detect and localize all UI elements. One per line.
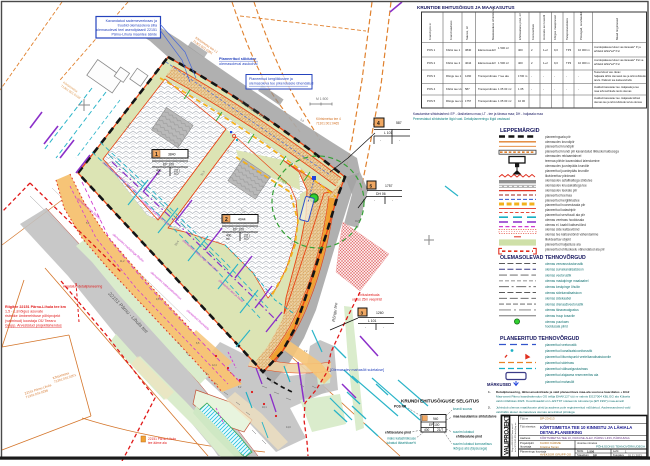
svg-text:arhitekti tähtis*ed* P.sl: arhitekti tähtis*ed* P.sl — [594, 62, 620, 66]
svg-text:Kõrtsi tee 1: Kõrtsi tee 1 — [446, 48, 461, 52]
svg-text:1: 1 — [155, 152, 158, 158]
svg-text:Joonise nimetus: Joonise nimetus — [577, 441, 598, 445]
svg-text:POS 1: POS 1 — [427, 48, 436, 52]
svg-text:1 05: 1 05 — [518, 87, 524, 91]
svg-text:suurim lubatud: suurim lubatud — [453, 430, 474, 434]
svg-text:POS 5: POS 5 — [427, 99, 436, 103]
svg-text:VALIPROJEKT: VALIPROJEKT — [504, 415, 511, 455]
svg-text:-: - — [554, 74, 555, 78]
svg-text:1757: 1757 — [465, 99, 472, 103]
svg-text:1+2: 1+2 — [543, 48, 548, 52]
svg-text:Maakasutuse sihtotstarve: Maakasutuse sihtotstarve — [491, 7, 495, 40]
svg-text:1260: 1260 — [376, 311, 384, 315]
svg-text:DH 06: DH 06 — [376, 192, 386, 196]
svg-text:Juhindub olemas maaüksuste pii: Juhindub olemas maaüksuste piirid ja aad… — [496, 405, 631, 409]
svg-text:-: - — [543, 74, 544, 78]
svg-text:Ehituskeeluala: Ehituskeeluala — [358, 293, 380, 297]
svg-text:1,5 - 1,8 lõigus asuvate: 1,5 - 1,8 lõigus asuvate — [5, 310, 43, 314]
svg-text:AVEKSOR GRUPP OÜ: AVEKSOR GRUPP OÜ — [540, 453, 571, 457]
svg-text:vald läbiv alusel olemasoleva: vald läbiv alusel olemasoleva olemas ame… — [496, 410, 575, 414]
svg-text:olemas tee kaitsevööndi vähend: olemas tee kaitsevööndi vähendamine — [545, 233, 599, 237]
svg-text:400: 400 — [424, 428, 430, 432]
svg-text:3840: 3840 — [465, 48, 472, 52]
svg-text:Transpordimaa: Transpordimaa — [478, 99, 497, 103]
svg-text:olemasoleva tee pikendusele üh: olemasoleva tee pikendusele ühendatud — [249, 82, 313, 86]
svg-text:1 05 00 m²: 1 05 00 m² — [498, 99, 511, 103]
svg-text:Tulepüsivusklass: Tulepüsivusklass — [565, 18, 569, 40]
svg-text:Riigitee 22151 Pärnu-Lihula te: Riigitee 22151 Pärnu-Lihula tee km — [5, 305, 67, 309]
svg-text:olemas puurkaev: olemas puurkaev — [545, 320, 569, 324]
svg-text:-: - — [531, 87, 532, 91]
svg-text:olemasolev krundipiir: olemasolev krundipiir — [545, 140, 575, 144]
svg-text:truubid olemasoleva silla: truubid olemasoleva silla — [118, 24, 157, 28]
svg-text:tee äärne ala: tee äärne ala — [148, 441, 167, 445]
svg-text:[Olemasolev mahasõit suletakse: [Olemasolev mahasõit suletakse] — [330, 368, 384, 372]
svg-text:Kasutamise sihtotstarbed: EP -: Kasutamise sihtotstarbed: EP - üksikelam… — [413, 112, 543, 116]
svg-text:Algatatud detailplaneering: Algatatud detailplaneering — [63, 285, 102, 289]
svg-text:Avalikult kasutatav tee. Halja: Avalikult kasutatav tee. Haljasala ja te… — [594, 85, 639, 89]
svg-text:Rõngu tee 1: Rõngu tee 1 — [446, 74, 462, 78]
svg-text:Transpordimaa: Transpordimaa — [478, 74, 497, 78]
svg-text:1 05 00 m²: 1 05 00 m² — [498, 87, 511, 91]
svg-text:olemas veetorustik: olemas veetorustik — [545, 273, 572, 277]
svg-text:KÕRTSIMETSA TEE 10, PAIKUSE AL: KÕRTSIMETSA TEE 10, PAIKUSE ALEV, PÄRNU … — [540, 435, 630, 440]
svg-text:9,0: 9,0 — [174, 172, 179, 176]
svg-text:Planeeritud kergliiklustee ja: Planeeritud kergliiklustee ja — [249, 77, 293, 81]
svg-text:olemas sidekaabel: olemas sidekaabel — [545, 297, 571, 301]
svg-text:14,0: 14,0 — [286, 426, 291, 429]
svg-text:DP-23-013: DP-23-013 — [540, 417, 555, 421]
svg-text:planeeritud katastripiir: planeeritud katastripiir — [545, 208, 576, 212]
svg-text:olemasolev kruusakattega tee: olemasolev kruusakattega tee — [545, 184, 587, 188]
svg-text:-: - — [374, 198, 375, 202]
svg-text:-: - — [543, 87, 544, 91]
svg-text:haljasala tähtis olemasol.tee: haljasala tähtis olemasol.tee ja tehnovõ… — [594, 74, 646, 78]
svg-text:Rõngu tee L1: Rõngu tee L1 — [446, 99, 463, 103]
svg-text:2: 2 — [225, 217, 228, 223]
svg-text:olemasolev juurdepääs krundile: olemasolev juurdepääs krundile — [545, 164, 589, 168]
svg-text:Transpordimaa: Transpordimaa — [478, 87, 497, 91]
svg-text:planeeritud hoonestusala piir: planeeritud hoonestusala piir — [545, 203, 585, 207]
svg-text:-: - — [578, 87, 579, 91]
svg-text:-: - — [399, 138, 400, 142]
svg-text:LEPPEMÄRGID: LEPPEMÄRGID — [500, 127, 540, 134]
svg-text:KRUNTIDE EHITUSÕIGUS JA MAAKAS: KRUNTIDE EHITUSÕIGUS JA MAAKASUTUS — [417, 4, 515, 10]
svg-text:POS 4: POS 4 — [427, 87, 436, 91]
svg-text:DETAILPLANEERING: DETAILPLANEERING — [540, 430, 582, 435]
svg-text:9,0: 9,0 — [244, 237, 249, 241]
svg-text:3840: 3840 — [168, 153, 176, 157]
svg-text:587: 587 — [396, 121, 402, 125]
svg-text:teemaa piiride kavandatud laie: teemaa piiride kavandatud laiendamine — [545, 159, 600, 163]
svg-text:4044: 4044 — [238, 218, 246, 222]
svg-text:planeeritud kanalisatsioonitor: planeeritud kanalisatsioonitorustik — [545, 349, 593, 353]
svg-text:Kristina Tamm: Kristina Tamm — [540, 445, 559, 449]
svg-text:maks katastriüksuse: maks katastriüksuse — [387, 437, 416, 441]
svg-text:olemas sidekanalisatsioon: olemas sidekanalisatsioon — [545, 291, 582, 295]
svg-text:Ehitisealune pind, m²: Ehitisealune pind, m² — [518, 13, 522, 40]
svg-text:olemasolev asfaltkattega sõidu: olemasolev asfaltkattega sõidutee — [545, 179, 593, 183]
svg-text:planeeritud välisvalgustustras: planeeritud välisvalgustustrass — [545, 367, 588, 371]
svg-text:planeeritud juurdepääs krundil: planeeritud juurdepääs krundile — [545, 169, 589, 173]
svg-text:M 1:500: M 1:500 — [316, 97, 328, 101]
svg-text:Kõrgus maapinnast: Kõrgus maapinnast — [553, 15, 557, 40]
svg-text:Grupp. Arvestatud projektlahen: Grupp. Arvestatud projektlahendus — [5, 323, 62, 327]
svg-text:11,2: 11,2 — [120, 260, 125, 263]
svg-text:POS 2: POS 2 — [427, 61, 436, 65]
svg-text:olemas el. kaabli kaitsevöönd: olemas el. kaabli kaitsevöönd — [545, 223, 586, 227]
svg-text:9,0: 9,0 — [554, 61, 558, 65]
svg-text:tel +372 5555 555 info@vp.ee: tel +372 5555 555 info@vp.ee — [514, 422, 517, 452]
svg-text:ehitisealune pind: ehitisealune pind — [456, 434, 482, 438]
svg-text:Juurdepääsuservituut vas tänav: Juurdepääsuservituut vas tänavale* P. ja — [594, 45, 641, 49]
svg-text:likvideeritav piirdeaed: likvideeritav piirdeaed — [545, 174, 575, 178]
svg-text:maa tehnovõrkude tarvis olemas: maa tehnovõrkude tarvis olemas — [594, 89, 632, 93]
svg-text:-: - — [380, 138, 381, 142]
svg-text:EP 100: EP 100 — [429, 423, 440, 427]
svg-text:-: - — [365, 325, 366, 329]
svg-text:planeeritud veetorustik: planeeritud veetorustik — [545, 343, 577, 347]
svg-text:Kõrtsi tee L1: Kõrtsi tee L1 — [446, 87, 462, 91]
svg-text:vald mõõdistas 2023. Koordinaa: vald mõõdistas 2023. Koordinaadid on L-E… — [496, 399, 624, 403]
svg-text:5: 5 — [370, 184, 373, 189]
svg-text:Kõrtsimetsa tee 4: Kõrtsimetsa tee 4 — [316, 117, 341, 121]
svg-text:1 500 m²: 1 500 m² — [498, 61, 509, 65]
svg-text:Elamumaa EV: Elamumaa EV — [478, 48, 496, 52]
svg-text:4: 4 — [377, 121, 380, 127]
svg-text:1 500 m²: 1 500 m² — [498, 46, 509, 50]
svg-text:POS NR: POS NR — [394, 405, 407, 409]
svg-text:Aadress: Aadress — [520, 436, 531, 440]
svg-text:1+2: 1+2 — [543, 61, 548, 65]
svg-text:1757: 1757 — [385, 184, 393, 188]
svg-text:Avalikult kasutatav tee. Halja: Avalikult kasutatav tee. Haljasala tähis… — [594, 96, 641, 100]
svg-text:arhitekti tähtis*ed* P.sl: arhitekti tähtis*ed* P.sl — [594, 49, 620, 53]
svg-text:-: - — [566, 74, 567, 78]
svg-text:m²: m² — [226, 237, 230, 241]
svg-text:olemas veevarustustorustik: olemas veevarustustorustik — [545, 262, 583, 266]
svg-text:olemas madalpinge maakaabel: olemas madalpinge maakaabel — [545, 279, 589, 283]
svg-text:krundi suurus: krundi suurus — [453, 407, 473, 411]
svg-text:1.: 1. — [488, 390, 491, 394]
svg-text:10 00: 10 00 — [518, 99, 525, 103]
svg-text:Krundi pos nr: Krundi pos nr — [428, 23, 432, 40]
svg-text:olemasolev teekate piir: olemasolev teekate piir — [545, 189, 577, 193]
svg-text:-: - — [531, 74, 532, 78]
svg-text:olemas truup kraavile: olemas truup kraavile — [545, 314, 575, 318]
svg-text:tarvis. Paikneb tee kaitsevöön: tarvis. Paikneb tee kaitsevööndis — [594, 78, 632, 82]
svg-text:planeeritud ehituskeelu vähend: planeeritud ehituskeelu vähendatud ala p… — [545, 247, 605, 251]
svg-text:TP3: TP3 — [566, 48, 572, 52]
svg-text:Töö nr: Töö nr — [520, 417, 528, 421]
svg-text:lubatud täisehituse%: lubatud täisehituse% — [387, 441, 417, 445]
svg-text:/koostaja: /koostaja — [520, 445, 532, 449]
svg-text:planeeritud servituudi ala pii: planeeritud servituudi ala piir — [545, 213, 585, 217]
svg-text:Teeservituut vas. tänav: Teeservituut vas. tänav — [594, 70, 621, 74]
svg-text:21/7: 21/7 — [437, 428, 443, 432]
svg-text:2.: 2. — [488, 405, 491, 409]
svg-text:maa kasutamise sihtotstarve: maa kasutamise sihtotstarve — [453, 415, 497, 419]
svg-text:4044: 4044 — [465, 61, 472, 65]
svg-text:Reg nr 11111111 Pärnu mnt 2: Reg nr 11111111 Pärnu mnt 2 — [511, 423, 514, 452]
svg-text:-: - — [383, 325, 384, 329]
svg-text:TP3: TP3 — [566, 61, 572, 65]
svg-text:OLEMASOLEVAD TEHNOVÕRGUD: OLEMASOLEVAD TEHNOVÕRGUD — [500, 254, 586, 261]
svg-text:planeeritud krundi piir kavand: planeeritud krundi piir kavandatud liikl… — [545, 149, 619, 153]
svg-text:likvideeritav objekt: likvideeritav objekt — [545, 238, 571, 242]
svg-text:71301:001:0465: 71301:001:0465 — [316, 121, 339, 125]
svg-text:Maa-ameti Pärnu kaardirakendus: Maa-ameti Pärnu kaardirakendus OÜ tellij… — [496, 395, 630, 399]
svg-text:400: 400 — [518, 48, 523, 52]
svg-text:L 101: L 101 — [368, 319, 376, 323]
svg-text:MÄRKUSED: MÄRKUSED — [487, 382, 511, 387]
svg-text:Muud tingimused: Muud tingimused — [615, 18, 619, 40]
svg-text:Töö nimetus: Töö nimetus — [520, 425, 536, 429]
svg-text:olemas tee ja tehnovõrkude tar: olemas tee ja tehnovõrkude tarvis olemas — [594, 100, 643, 104]
svg-text:olemas veetrass hooldusala: olemas veetrass hooldusala — [545, 218, 584, 222]
svg-text:planeeritud liitumispunkt veel: planeeritud liitumispunkt veele/kanalisa… — [545, 355, 611, 359]
svg-text:3: 3 — [361, 311, 364, 316]
svg-text:10 000 m: 10 000 m — [578, 61, 590, 65]
svg-text:Planeeritud sõidutee: Planeeritud sõidutee — [219, 57, 256, 61]
svg-text:olemas drenaaživeetorustik: olemas drenaaživeetorustik — [545, 302, 584, 306]
svg-text:Kõrtsi tee 2: Kõrtsi tee 2 — [446, 61, 461, 65]
svg-text:587: 587 — [465, 87, 470, 91]
svg-text:R25: R25 — [355, 219, 361, 223]
svg-text:ristmike ümberehituse põhiproj: ristmike ümberehituse põhiprojekt — [5, 314, 60, 318]
svg-text:planeeringuala piir: planeeringuala piir — [545, 135, 571, 139]
svg-text:planeeritud haljastuse ala: planeeritud haljastuse ala — [545, 242, 581, 246]
svg-text:Kavandatud sademeveekraav ja: Kavandatud sademeveekraav ja — [106, 19, 157, 23]
svg-text:suurim lubatud korruselisus: suurim lubatud korruselisus — [453, 442, 492, 446]
svg-text:EP 100: EP 100 — [163, 162, 174, 166]
svg-text:olemasoleval teel asendiplaani: olemasoleval teel asendiplaanil 22151 — [96, 28, 157, 32]
svg-text:planeeritud mahasõit: planeeritud mahasõit — [545, 380, 574, 384]
svg-text:PLANEERITUD TEHNOVÕRGUD: PLANEERITUD TEHNOVÕRGUD — [500, 335, 580, 342]
svg-text:Detailplaneering, lähteseisuko: Detailplaneering, lähteseisukohtade ja v… — [496, 390, 630, 394]
svg-text:olemas tänavavalgustus: olemas tänavavalgustus — [545, 308, 579, 312]
svg-text:Korruselisus: Korruselisus — [531, 24, 535, 40]
svg-text:10,1: 10,1 — [262, 406, 267, 409]
svg-text:POS 3: POS 3 — [427, 74, 436, 78]
svg-text:planeeritud kergliiklustee: planeeritud kergliiklustee — [545, 198, 580, 202]
svg-text:EP 100: EP 100 — [233, 227, 244, 231]
svg-text:hooldusala piirid: hooldusala piirid — [545, 325, 568, 329]
svg-text:1700 m: 1700 m — [518, 74, 528, 78]
svg-text:Pärnu-Lihula maantee äärde: Pärnu-Lihula maantee äärde — [111, 33, 157, 37]
svg-text:KRUNDI EHITUSÕIGUSE SELGITUS: KRUNDI EHITUSÕIGUSE SELGITUS — [401, 398, 479, 404]
svg-text:9,0: 9,0 — [554, 48, 558, 52]
svg-text:-: - — [392, 198, 393, 202]
svg-text:12,4: 12,4 — [212, 364, 217, 367]
svg-text:olemasolev reklaamtahvel: olemasolev reklaamtahvel — [545, 154, 582, 158]
svg-text:olemas side kaitsevöönd: olemas side kaitsevöönd — [545, 228, 580, 232]
svg-text:Hoonete arv krundil: Hoonete arv krundil — [542, 15, 546, 40]
svg-text:-: - — [566, 87, 567, 91]
svg-text:-: - — [554, 87, 555, 91]
svg-text:-: - — [578, 74, 579, 78]
svg-text:ulatus 25m veepiirist: ulatus 25m veepiirist — [352, 297, 382, 301]
svg-text:planeeritud alajaama reserveer: planeeritud alajaama reserveeritav ala — [545, 373, 599, 377]
svg-text:PÕHIJOONIS TEHNOVÕRKUDEGA: PÕHIJOONIS TEHNOVÕRKUDEGA — [596, 444, 645, 449]
svg-text:ehitisealune pind: ehitisealune pind — [385, 431, 411, 435]
svg-text:7 tee ala: 7 tee ala — [498, 74, 509, 78]
svg-text:Piirangud, servituudid: Piirangud, servituudid — [579, 12, 583, 40]
svg-text:/kõrgus abs (täpsusega): /kõrgus abs (täpsusega) — [453, 446, 487, 450]
svg-text:Peenestatud sihtotstarbe liigi: Peenestatud sihtotstarbe liigid vast. De… — [413, 117, 510, 121]
svg-text:Krundi aadress: Krundi aadress — [449, 20, 453, 40]
svg-text:940: 940 — [433, 417, 439, 421]
svg-text:Suurus, m²: Suurus, m² — [465, 26, 469, 40]
svg-text:10 000 m: 10 000 m — [578, 48, 590, 52]
svg-text:Elamumaa EV: Elamumaa EV — [478, 61, 496, 65]
svg-text:1260: 1260 — [465, 74, 472, 78]
svg-text:(valminud) koostaja OÜ Teearu: (valminud) koostaja OÜ Teearu — [5, 319, 56, 323]
svg-text:olemas survekanalisatsioon: olemas survekanalisatsioon — [545, 268, 584, 272]
svg-text:planeeritud krundipiir: planeeritud krundipiir — [545, 144, 574, 148]
svg-text:m²: m² — [156, 172, 160, 176]
svg-text:planeeritud teemaa: planeeritud teemaa — [545, 193, 572, 197]
svg-text:L 101: L 101 — [384, 131, 392, 135]
svg-text:Juurdepääsuservituut vas tänav: Juurdepääsuservituut vas tänavale* P.sl … — [594, 58, 644, 62]
svg-text:400: 400 — [518, 61, 523, 65]
svg-text:planeeritud sidetrass: planeeritud sidetrass — [545, 361, 574, 365]
svg-text:olemasoleval asukohal: olemasoleval asukohal — [219, 62, 258, 66]
svg-text:olemas keskpinge õhuliin: olemas keskpinge õhuliin — [545, 285, 580, 289]
